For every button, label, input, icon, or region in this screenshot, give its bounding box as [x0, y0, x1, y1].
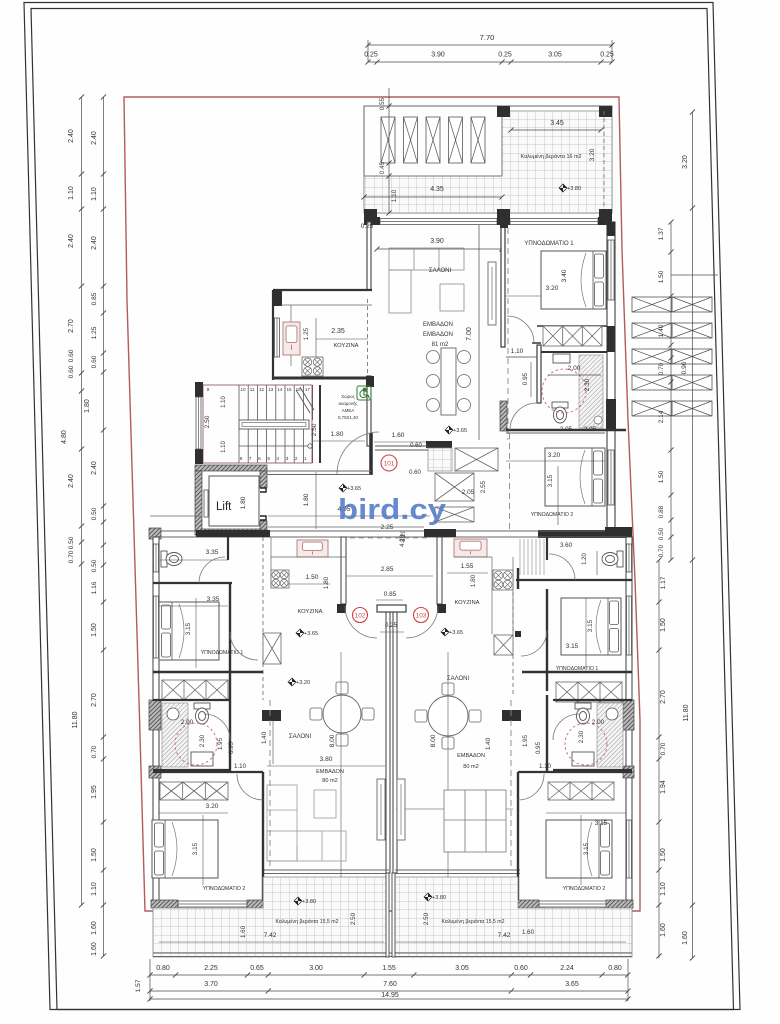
svg-text:80 m2: 80 m2	[322, 778, 338, 784]
svg-text:+3.80: +3.80	[302, 899, 316, 905]
svg-text:10: 10	[240, 387, 246, 392]
svg-text:1.80: 1.80	[240, 496, 247, 509]
svg-text:2.05: 2.05	[584, 426, 597, 433]
svg-text:3.65: 3.65	[565, 981, 579, 988]
svg-text:bird.cy: bird.cy	[338, 494, 446, 526]
svg-text:ΣΑΛΟΝΙ: ΣΑΛΟΝΙ	[429, 268, 452, 274]
svg-text:3.20: 3.20	[548, 452, 561, 459]
svg-text:ΚΟΥΖΙΝΑ: ΚΟΥΖΙΝΑ	[297, 609, 322, 615]
svg-text:0.65: 0.65	[250, 965, 264, 972]
svg-text:14: 14	[277, 387, 283, 392]
svg-text:2.25: 2.25	[204, 965, 218, 972]
svg-text:0.85: 0.85	[384, 591, 397, 598]
svg-text:1.50: 1.50	[658, 470, 665, 483]
svg-text:12: 12	[259, 387, 265, 392]
svg-text:0.60: 0.60	[68, 365, 75, 378]
svg-text:1: 1	[304, 456, 307, 461]
svg-text:0.85: 0.85	[91, 292, 98, 305]
svg-text:ΑΜΕΑ: ΑΜΕΑ	[342, 408, 355, 413]
svg-text:3.80: 3.80	[320, 756, 333, 763]
svg-text:2.05: 2.05	[560, 426, 573, 433]
svg-text:1.10: 1.10	[91, 187, 98, 201]
svg-text:3.90: 3.90	[430, 238, 444, 245]
svg-text:1.80: 1.80	[323, 576, 330, 589]
svg-text:0.70: 0.70	[658, 362, 665, 375]
svg-text:1.80: 1.80	[331, 431, 344, 438]
svg-text:ΥΠΝΟΔΩΜΑΤΙΟ 1: ΥΠΝΟΔΩΜΑΤΙΟ 1	[524, 241, 574, 247]
svg-text:2.50: 2.50	[423, 912, 430, 925]
svg-text:1.50: 1.50	[660, 848, 667, 862]
svg-text:0.90: 0.90	[681, 361, 688, 374]
svg-text:0.70: 0.70	[68, 550, 75, 563]
svg-text:ΥΠΝΟΔΩΜΑΤΙΟ 2: ΥΠΝΟΔΩΜΑΤΙΟ 2	[563, 886, 606, 892]
svg-text:0.80: 0.80	[156, 965, 170, 972]
svg-text:3.15: 3.15	[595, 820, 608, 827]
svg-text:2.55: 2.55	[480, 480, 487, 493]
svg-text:1.95: 1.95	[91, 785, 98, 799]
svg-text:αναμονής: αναμονής	[339, 401, 358, 406]
svg-text:2.50: 2.50	[204, 415, 211, 428]
svg-text:14.95: 14.95	[381, 992, 399, 999]
svg-text:2.30: 2.30	[584, 378, 591, 391]
svg-text:ΕΜΒΑΔΟΝ: ΕΜΒΑΔΟΝ	[423, 322, 453, 328]
svg-text:2.70: 2.70	[68, 319, 75, 333]
svg-text:1.95: 1.95	[522, 734, 529, 747]
svg-text:3.15: 3.15	[185, 622, 192, 635]
svg-text:0.50: 0.50	[91, 559, 98, 572]
svg-text:1.37: 1.37	[658, 227, 665, 240]
svg-text:+3.80: +3.80	[567, 186, 581, 192]
svg-text:1.50: 1.50	[306, 574, 319, 581]
svg-text:2.00: 2.00	[592, 719, 605, 726]
svg-text:4.80: 4.80	[61, 430, 68, 444]
svg-text:Lift: Lift	[216, 501, 232, 513]
svg-text:3.35: 3.35	[207, 596, 220, 603]
svg-text:3.90: 3.90	[431, 52, 445, 59]
svg-text:1.10: 1.10	[234, 763, 247, 770]
svg-text:3.40: 3.40	[561, 269, 568, 282]
svg-text:+3.65: +3.65	[449, 630, 463, 636]
svg-text:3.05: 3.05	[455, 965, 469, 972]
svg-text:ΚΟΥΖΙΝΑ: ΚΟΥΖΙΝΑ	[333, 343, 358, 349]
svg-text:+3.65: +3.65	[304, 631, 318, 637]
svg-text:1.10: 1.10	[221, 396, 227, 408]
svg-text:ΥΠΝΟΔΩΜΑΤΙΟ 2: ΥΠΝΟΔΩΜΑΤΙΟ 2	[531, 512, 574, 518]
svg-text:3.15: 3.15	[587, 619, 594, 632]
svg-text:1.25: 1.25	[91, 326, 98, 339]
svg-text:7.42: 7.42	[498, 932, 511, 939]
svg-text:Χώρος: Χώρος	[341, 394, 354, 399]
svg-text:1.20: 1.20	[582, 553, 588, 565]
svg-text:0.95: 0.95	[228, 741, 235, 754]
svg-text:1.40: 1.40	[485, 737, 492, 750]
svg-text:6: 6	[258, 456, 261, 461]
svg-text:15: 15	[286, 387, 292, 392]
svg-text:0.95: 0.95	[522, 372, 529, 385]
svg-text:0.55: 0.55	[379, 97, 386, 110]
svg-text:1.55: 1.55	[382, 965, 396, 972]
svg-text:1.40: 1.40	[261, 731, 268, 744]
svg-text:1.60: 1.60	[682, 931, 689, 945]
svg-text:3.15: 3.15	[583, 842, 590, 855]
svg-text:8: 8	[240, 456, 243, 461]
svg-text:ΥΠΝΟΔΩΜΑΤΙΟ 2: ΥΠΝΟΔΩΜΑΤΙΟ 2	[203, 886, 246, 892]
svg-text:2.40: 2.40	[68, 234, 75, 248]
svg-text:+3.20: +3.20	[296, 680, 310, 686]
svg-text:1.10: 1.10	[91, 882, 98, 896]
svg-text:0.95: 0.95	[535, 741, 542, 754]
svg-text:3.05: 3.05	[548, 52, 562, 59]
svg-text:0.60: 0.60	[68, 349, 75, 362]
svg-text:1.94: 1.94	[660, 780, 667, 794]
svg-text:101: 101	[384, 461, 395, 468]
svg-text:1.17: 1.17	[660, 576, 667, 589]
svg-text:2.40: 2.40	[68, 129, 75, 143]
svg-text:1.55: 1.55	[461, 563, 474, 570]
svg-text:+3.65: +3.65	[347, 486, 361, 492]
svg-text:13: 13	[268, 387, 274, 392]
svg-text:0.70: 0.70	[91, 745, 98, 758]
svg-text:1.10: 1.10	[511, 348, 524, 355]
svg-text:2.40: 2.40	[91, 131, 98, 145]
svg-text:3.15: 3.15	[566, 643, 579, 650]
svg-text:Καλυμένη βεράντα 16 m2: Καλυμένη βεράντα 16 m2	[521, 153, 582, 160]
svg-text:7.42: 7.42	[264, 932, 277, 939]
svg-text:0.60: 0.60	[409, 470, 421, 476]
svg-text:2.70: 2.70	[91, 693, 98, 707]
svg-text:1.60: 1.60	[91, 942, 98, 956]
svg-text:2.00: 2.00	[568, 365, 581, 372]
svg-text:1.60: 1.60	[522, 929, 535, 936]
svg-text:1.80: 1.80	[84, 399, 91, 413]
svg-text:1.50: 1.50	[660, 618, 667, 632]
svg-text:1.60: 1.60	[392, 432, 405, 439]
svg-text:ΚΟΥΖΙΝΑ: ΚΟΥΖΙΝΑ	[454, 600, 479, 606]
svg-text:0.88: 0.88	[658, 505, 665, 518]
svg-text:1.16: 1.16	[91, 581, 98, 594]
svg-text:17: 17	[305, 387, 311, 392]
svg-text:1.10: 1.10	[539, 763, 552, 770]
svg-text:3.15: 3.15	[192, 842, 199, 855]
svg-text:1.50: 1.50	[91, 848, 98, 862]
svg-text:2.05: 2.05	[462, 489, 475, 496]
svg-text:1.50: 1.50	[91, 623, 98, 637]
svg-text:3.60: 3.60	[560, 542, 573, 549]
svg-text:9: 9	[207, 387, 210, 392]
svg-text:1.10: 1.10	[660, 882, 667, 896]
svg-text:4.35: 4.35	[430, 186, 444, 193]
svg-text:ΣΑΛΟΝΙ: ΣΑΛΟΝΙ	[447, 676, 470, 682]
svg-text:11.80: 11.80	[683, 704, 690, 721]
svg-text:2.24: 2.24	[560, 965, 574, 972]
svg-text:3.20: 3.20	[206, 803, 219, 810]
svg-text:2.30: 2.30	[199, 734, 206, 747]
svg-text:1.80: 1.80	[303, 493, 310, 506]
svg-text:ΣΑΛΟΝΙ: ΣΑΛΟΝΙ	[289, 734, 312, 740]
svg-text:0.25: 0.25	[385, 622, 398, 629]
svg-text:2.14: 2.14	[658, 410, 665, 423]
svg-text:1.60: 1.60	[240, 925, 247, 938]
svg-text:ΕΜΒΑΔΟΝ: ΕΜΒΑΔΟΝ	[316, 769, 344, 775]
svg-text:80 m2: 80 m2	[463, 764, 479, 770]
svg-text:0.50: 0.50	[68, 536, 75, 549]
svg-text:+3.65: +3.65	[453, 428, 467, 434]
svg-text:1.60: 1.60	[660, 923, 667, 937]
svg-text:2.50: 2.50	[311, 423, 318, 436]
svg-text:1.10: 1.10	[221, 441, 227, 453]
svg-text:+3.80: +3.80	[432, 895, 446, 901]
svg-text:2.40: 2.40	[91, 461, 98, 475]
svg-text:0.25: 0.25	[361, 223, 374, 230]
svg-text:3.15: 3.15	[547, 474, 554, 487]
svg-text:0,75X1,40: 0,75X1,40	[338, 415, 359, 420]
svg-text:0.50: 0.50	[658, 527, 665, 540]
svg-text:2.70: 2.70	[660, 690, 667, 704]
svg-text:1.80: 1.80	[470, 574, 477, 587]
svg-text:4: 4	[277, 456, 280, 461]
svg-text:81 m2: 81 m2	[432, 342, 449, 348]
svg-text:0.25: 0.25	[364, 52, 378, 59]
svg-text:0.70: 0.70	[660, 742, 667, 755]
svg-text:2.40: 2.40	[91, 236, 98, 250]
svg-text:1.60: 1.60	[91, 921, 98, 935]
svg-text:Καλυμένη βεράντα 15,5 m2: Καλυμένη βεράντα 15,5 m2	[442, 918, 505, 925]
svg-text:ΕΜΒΑΔΟΝ: ΕΜΒΑΔΟΝ	[457, 753, 485, 759]
svg-text:0.80: 0.80	[608, 965, 622, 972]
svg-text:0.60: 0.60	[514, 965, 528, 972]
svg-text:103: 103	[416, 613, 427, 620]
svg-text:1.40: 1.40	[658, 324, 665, 337]
svg-text:3.20: 3.20	[589, 148, 596, 161]
svg-text:3.20: 3.20	[546, 285, 559, 292]
svg-text:2: 2	[295, 456, 298, 461]
svg-text:Καλυμένη βεράντα 15,5 m2: Καλυμένη βεράντα 15,5 m2	[276, 918, 339, 925]
svg-text:8.00: 8.00	[329, 734, 336, 747]
svg-text:3.70: 3.70	[204, 981, 218, 988]
svg-text:0.25: 0.25	[600, 52, 614, 59]
svg-text:ΕΜΒΑΔΟΝ: ΕΜΒΑΔΟΝ	[423, 332, 453, 338]
svg-text:2.40: 2.40	[68, 474, 75, 488]
svg-text:7.60: 7.60	[383, 981, 397, 988]
svg-text:0.60: 0.60	[410, 443, 422, 449]
svg-text:102: 102	[355, 613, 366, 620]
svg-text:7.70: 7.70	[480, 33, 495, 42]
svg-text:5: 5	[267, 456, 270, 461]
svg-text:2.85: 2.85	[381, 566, 394, 573]
svg-text:8.00: 8.00	[430, 734, 437, 747]
svg-text:0.70: 0.70	[658, 544, 665, 557]
svg-text:3.00: 3.00	[309, 965, 323, 972]
svg-text:1.10: 1.10	[68, 186, 75, 200]
svg-text:1.95: 1.95	[217, 737, 224, 750]
svg-text:11: 11	[250, 387, 255, 392]
svg-text:0.25: 0.25	[498, 52, 512, 59]
svg-text:3.35: 3.35	[206, 549, 219, 556]
svg-text:2.35: 2.35	[331, 328, 345, 335]
svg-text:1.10: 1.10	[391, 189, 398, 202]
svg-text:3.20: 3.20	[682, 155, 689, 169]
svg-text:3.45: 3.45	[550, 120, 564, 127]
svg-text:0.60: 0.60	[91, 355, 98, 368]
svg-text:1.50: 1.50	[658, 270, 665, 283]
svg-text:0.50: 0.50	[91, 507, 98, 520]
svg-text:7: 7	[249, 456, 252, 461]
svg-text:2.00: 2.00	[181, 719, 194, 726]
svg-text:0.45: 0.45	[379, 161, 386, 174]
svg-text:7.00: 7.00	[466, 327, 473, 341]
svg-text:1.57: 1.57	[135, 979, 142, 992]
svg-text:4.20: 4.20	[399, 534, 406, 547]
svg-text:11.80: 11.80	[72, 711, 79, 728]
svg-text:2.50: 2.50	[350, 912, 357, 925]
svg-text:1.25: 1.25	[303, 327, 310, 340]
svg-text:2.30: 2.30	[578, 730, 585, 743]
svg-text:3: 3	[286, 456, 289, 461]
